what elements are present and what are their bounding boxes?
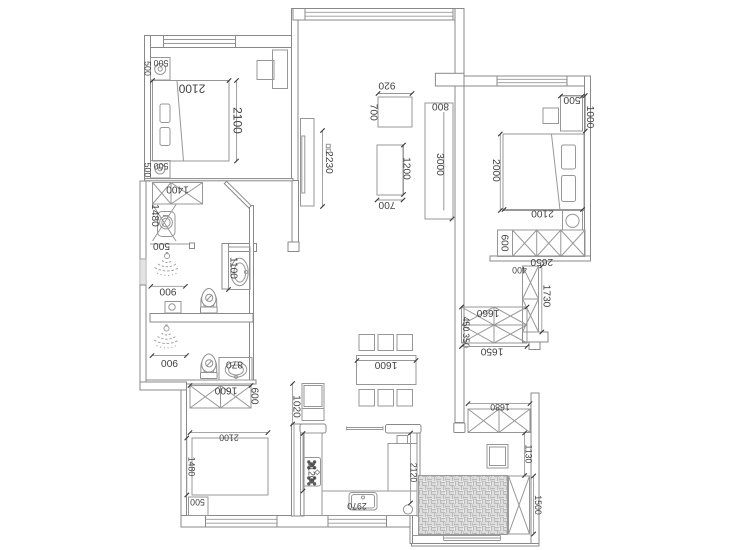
svg-text:2970: 2970 [347, 501, 367, 511]
svg-text:1500: 1500 [533, 495, 543, 515]
svg-text:500: 500 [153, 240, 170, 251]
svg-text:600: 600 [499, 234, 510, 251]
svg-text:1400: 1400 [166, 183, 189, 194]
svg-text:2120: 2120 [409, 463, 419, 483]
svg-text:920: 920 [378, 80, 395, 91]
svg-text:2100: 2100 [219, 432, 239, 442]
svg-text:500: 500 [190, 497, 205, 507]
svg-text:400: 400 [512, 265, 527, 275]
svg-text:500: 500 [563, 94, 580, 105]
svg-text:900: 900 [159, 285, 176, 296]
svg-text:2100: 2100 [178, 81, 205, 95]
svg-text:1200: 1200 [400, 157, 411, 180]
svg-text:1600: 1600 [214, 385, 237, 396]
svg-text:3000: 3000 [434, 153, 445, 176]
svg-text:900: 900 [161, 357, 178, 368]
svg-text:1650: 1650 [480, 345, 503, 356]
svg-text:1660: 1660 [476, 307, 499, 318]
svg-text:2100: 2100 [231, 107, 245, 134]
svg-text:500: 500 [142, 61, 152, 76]
svg-text:1600: 1600 [374, 359, 397, 370]
svg-text:1130: 1130 [523, 445, 533, 464]
svg-text:700: 700 [368, 104, 379, 121]
svg-text:600: 600 [249, 388, 260, 405]
svg-text:2000: 2000 [490, 159, 501, 182]
svg-text:1680: 1680 [490, 402, 510, 412]
svg-text:500: 500 [154, 58, 169, 68]
svg-text:2650: 2650 [530, 256, 553, 267]
svg-text:1480: 1480 [187, 457, 197, 477]
svg-text:2120: 2120 [307, 461, 317, 481]
svg-text:1000: 1000 [584, 106, 595, 129]
svg-text:870: 870 [226, 358, 243, 369]
svg-text:1480: 1480 [149, 204, 160, 227]
svg-text:2100: 2100 [531, 208, 554, 219]
svg-text:500: 500 [142, 163, 152, 178]
svg-text:1730: 1730 [541, 285, 552, 308]
svg-text:2230: 2230 [323, 151, 334, 174]
svg-text:1100: 1100 [227, 257, 238, 279]
svg-text:450: 450 [461, 317, 471, 332]
svg-text:500: 500 [154, 161, 169, 171]
svg-text:700: 700 [378, 199, 395, 210]
svg-text:800: 800 [432, 101, 449, 112]
svg-text:1020: 1020 [290, 395, 301, 418]
